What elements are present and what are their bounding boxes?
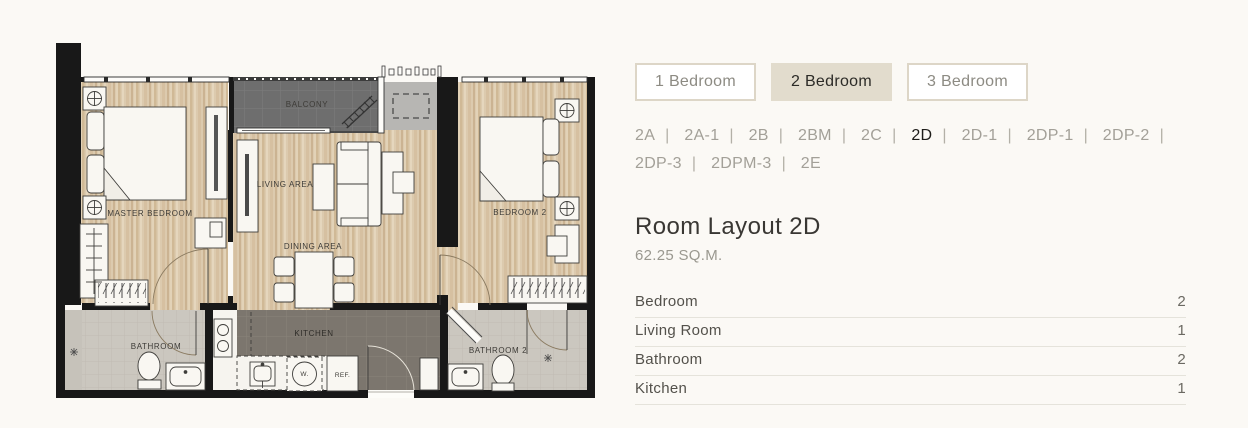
bedroom2-window <box>462 77 587 82</box>
unit-link-2e[interactable]: 2E <box>801 155 821 172</box>
stove <box>214 319 232 357</box>
wall-living-bedroom2 <box>437 77 458 247</box>
tab-1-bedroom[interactable]: 1 Bedroom <box>635 63 756 101</box>
bedroom2-label: BEDROOM 2 <box>493 208 546 217</box>
unit-link-2d[interactable]: 2D <box>911 127 932 144</box>
room-count: 2 <box>1177 351 1186 368</box>
coffee-table <box>313 164 334 210</box>
unit-link-2dpm-3[interactable]: 2DPM-3 <box>711 155 771 172</box>
table-row-bedroom: Bedroom 2 <box>635 289 1186 318</box>
nightstand <box>83 87 106 110</box>
master-wardrobe <box>206 107 227 199</box>
unit-detail-panel: 1 Bedroom 2 Bedroom 3 Bedroom 2A| 2A-1| … <box>635 63 1186 405</box>
wall-right <box>587 77 595 393</box>
washer-label: W. <box>300 371 308 378</box>
separator: | <box>1160 127 1164 144</box>
shower-drain <box>70 348 78 356</box>
bathroom2-sink <box>448 364 483 390</box>
ledge-grille <box>382 66 441 77</box>
balcony-railing <box>233 77 378 81</box>
fridge-label: REF. <box>335 372 350 379</box>
kitchen-label: KITCHEN <box>294 329 333 338</box>
table-row-bathroom: Bathroom 2 <box>635 347 1186 376</box>
unit-type-nav: 2A| 2A-1| 2B| 2BM| 2C| 2D| 2D-1| 2DP-1| … <box>635 122 1175 178</box>
room-name: Living Room <box>635 322 722 339</box>
tv-console <box>237 140 258 232</box>
bathroom-label: BATHROOM <box>131 342 181 351</box>
desk-chair <box>547 236 567 256</box>
room-count: 1 <box>1177 380 1186 397</box>
wall-master-living <box>228 130 233 242</box>
bathroom2-label: BATHROOM 2 <box>469 346 527 355</box>
unit-link-2dp-2[interactable]: 2DP-2 <box>1103 127 1150 144</box>
separator: | <box>692 155 696 172</box>
pantry-cabinet <box>420 358 438 390</box>
toilet <box>138 352 161 389</box>
room-count: 1 <box>1177 322 1186 339</box>
toilet <box>492 355 514 391</box>
sofa <box>337 142 381 226</box>
page-title: Room Layout 2D <box>635 213 1186 241</box>
nightstand <box>555 99 579 122</box>
separator: | <box>782 155 786 172</box>
separator: | <box>665 127 669 144</box>
ac-ledge <box>384 82 437 130</box>
balcony-label: BALCONY <box>286 100 328 109</box>
bedroom2-wardrobe <box>508 276 587 303</box>
kitchen-sink <box>250 362 275 388</box>
tab-3-bedroom[interactable]: 3 Bedroom <box>907 63 1028 101</box>
table-row-living-room: Living Room 1 <box>635 318 1186 347</box>
balcony-column <box>378 77 384 133</box>
floorplan-svg: BALCONY LIVING AREA DINING AREA MASTER B… <box>46 36 598 404</box>
shower-outer-floor <box>65 310 82 390</box>
separator: | <box>779 127 783 144</box>
separator: | <box>1007 127 1011 144</box>
wall-kitchen-bathroom2 <box>440 310 448 392</box>
side-table <box>393 172 414 193</box>
separator: | <box>842 127 846 144</box>
unit-link-2c[interactable]: 2C <box>861 127 882 144</box>
dining-area-label: DINING AREA <box>284 242 342 251</box>
bedroom-type-tabs: 1 Bedroom 2 Bedroom 3 Bedroom <box>635 63 1186 101</box>
unit-link-2a[interactable]: 2A <box>635 127 655 144</box>
separator: | <box>892 127 896 144</box>
master-window <box>84 77 229 82</box>
separator: | <box>942 127 946 144</box>
nightstand <box>555 197 579 220</box>
room-name: Bathroom <box>635 351 702 368</box>
bathroom-sink <box>166 363 205 390</box>
living-area-label: LIVING AREA <box>257 180 313 189</box>
unit-link-2dp-3[interactable]: 2DP-3 <box>635 155 682 172</box>
master-bedroom-label: MASTER BEDROOM <box>107 209 192 218</box>
unit-link-2dp-1[interactable]: 2DP-1 <box>1027 127 1074 144</box>
separator: | <box>1084 127 1088 144</box>
unit-link-2a-1[interactable]: 2A-1 <box>684 127 719 144</box>
shower-symbol <box>544 354 552 362</box>
unit-link-2b[interactable]: 2B <box>749 127 769 144</box>
room-count-table: Bedroom 2 Living Room 1 Bathroom 2 Kitch… <box>635 289 1186 405</box>
unit-link-2bm[interactable]: 2BM <box>798 127 832 144</box>
wall-bathroom-right <box>205 303 213 392</box>
unit-link-2d-1[interactable]: 2D-1 <box>962 127 998 144</box>
floorplan-image: BALCONY LIVING AREA DINING AREA MASTER B… <box>46 36 598 404</box>
unit-area: 62.25 SQ.M. <box>635 247 1186 264</box>
master-dresser <box>195 218 226 248</box>
room-count: 2 <box>1177 293 1186 310</box>
table-row-kitchen: Kitchen 1 <box>635 376 1186 405</box>
room-name: Bedroom <box>635 293 698 310</box>
separator: | <box>729 127 733 144</box>
tab-2-bedroom[interactable]: 2 Bedroom <box>771 63 892 101</box>
wall-pillar-left <box>56 43 81 305</box>
room-name: Kitchen <box>635 380 687 397</box>
nightstand <box>83 196 106 219</box>
